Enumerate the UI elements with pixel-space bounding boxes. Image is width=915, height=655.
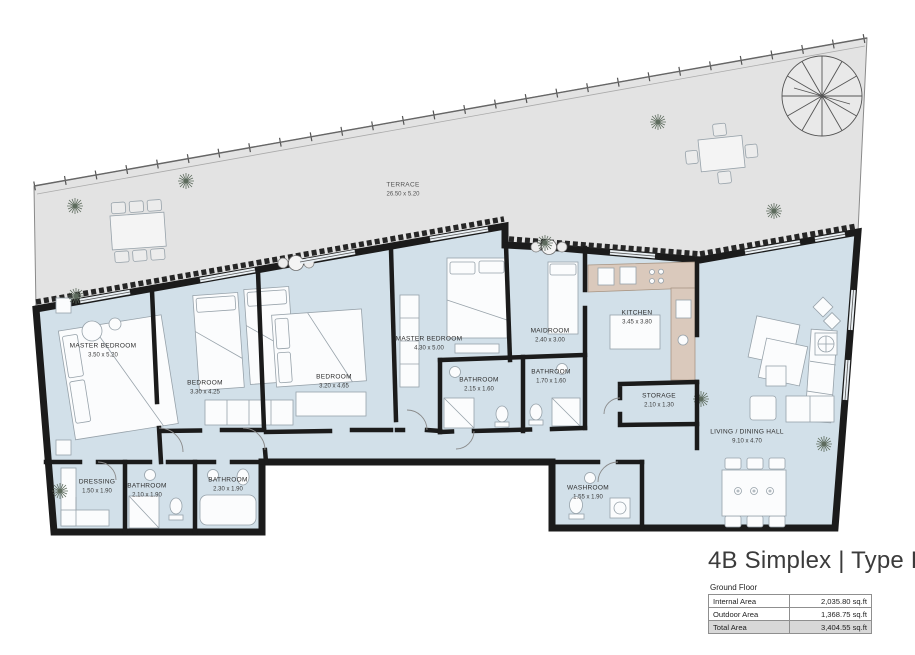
- title-block: 4B Simplex | Type D Ground Floor Interna…: [708, 547, 908, 634]
- bed-master-1: [58, 315, 178, 440]
- nightstand: [56, 298, 71, 313]
- wardrobe: [205, 400, 293, 425]
- area-table: Internal Area 2,035.80 sq.ft Outdoor Are…: [708, 594, 872, 634]
- terrace-dining-set: [109, 199, 167, 263]
- table-row: Outdoor Area 1,368.75 sq.ft: [709, 608, 872, 621]
- armchair: [750, 396, 776, 420]
- area-value: 1,368.75 sq.ft: [789, 608, 871, 621]
- bed-single-1: [193, 293, 245, 391]
- area-label: Internal Area: [709, 595, 790, 608]
- dresser: [296, 392, 366, 416]
- page-title: 4B Simplex | Type D: [708, 547, 908, 575]
- table-row-total: Total Area 3,404.55 sq.ft: [709, 621, 872, 634]
- bed-double-1: [272, 309, 367, 387]
- side-table: [109, 318, 121, 330]
- area-label: Outdoor Area: [709, 608, 790, 621]
- coffee-table: [766, 366, 786, 386]
- terrace-bistro-set: [278, 256, 314, 271]
- floor-label: Ground Floor: [710, 583, 908, 592]
- wardrobe: [400, 295, 419, 387]
- floor-plan-sheet: TERRACE 26.50 x 5.20 MASTER BEDROOM 3.50…: [0, 0, 915, 655]
- area-label: Total Area: [709, 621, 790, 634]
- umbrella-icon: [782, 56, 862, 136]
- dining-table-set: [722, 458, 786, 527]
- bed-maid: [548, 262, 578, 334]
- nightstand: [56, 440, 71, 455]
- kitchen-island: [610, 315, 660, 349]
- area-value: 3,404.55 sq.ft: [789, 621, 871, 634]
- table-row: Internal Area 2,035.80 sq.ft: [709, 595, 872, 608]
- corner-table: [815, 333, 837, 355]
- area-value: 2,035.80 sq.ft: [789, 595, 871, 608]
- ottoman: [82, 321, 102, 341]
